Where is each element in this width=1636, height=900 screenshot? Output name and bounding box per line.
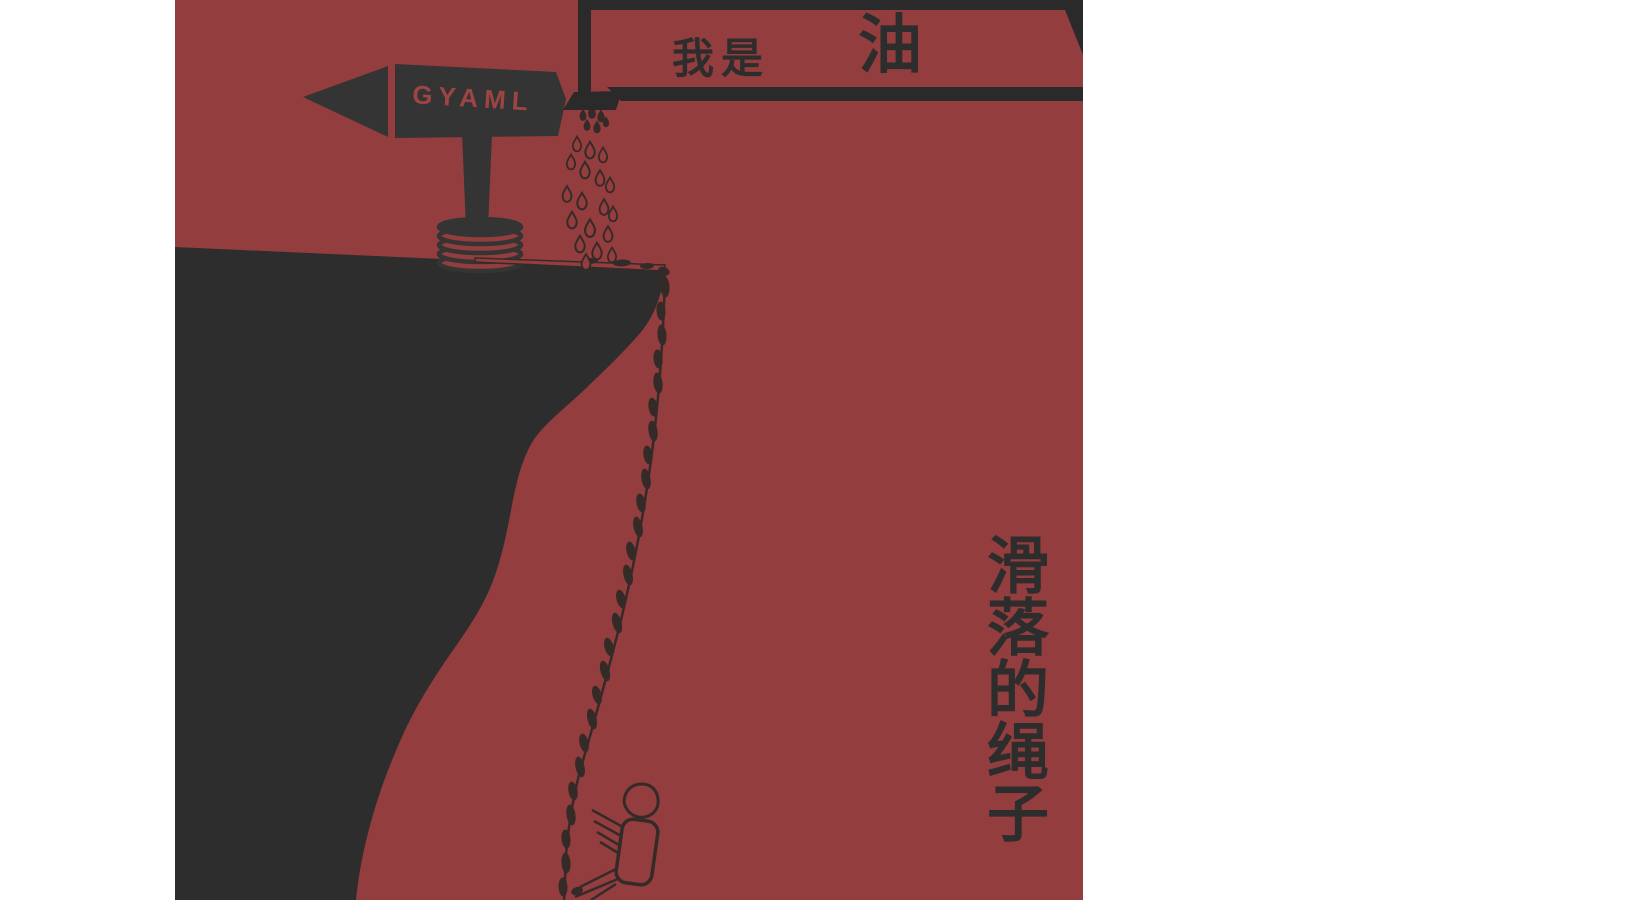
bubble-top-bar [587, 0, 1083, 10]
oil-falling-drops [563, 137, 618, 270]
bubble-tail [563, 91, 622, 110]
sign-post [462, 133, 492, 229]
bubble-left-bar [578, 0, 591, 96]
bubble-bottom-bar [607, 87, 1083, 101]
illustration [175, 0, 1083, 900]
cliff-silhouette [175, 247, 665, 900]
oil-drops [563, 105, 618, 270]
climber-figure [570, 784, 659, 900]
bubble-right-wedge [1061, 0, 1083, 55]
climber-body [615, 818, 660, 886]
speech-bubble-frame [563, 0, 1083, 110]
poster-canvas: 我是 油 GYAML 滑落的绳子 [0, 0, 1636, 900]
bubble-text-prefix: 我是 [672, 38, 770, 80]
climber-head [624, 784, 658, 817]
poster-red-panel: 我是 油 GYAML 滑落的绳子 [175, 0, 1083, 900]
vertical-title: 滑落的绳子 [981, 533, 1043, 843]
bubble-text-emphasis: 油 [858, 14, 922, 78]
sign-arrowhead-icon [303, 66, 388, 137]
signpost-label: GYAML [404, 81, 541, 115]
